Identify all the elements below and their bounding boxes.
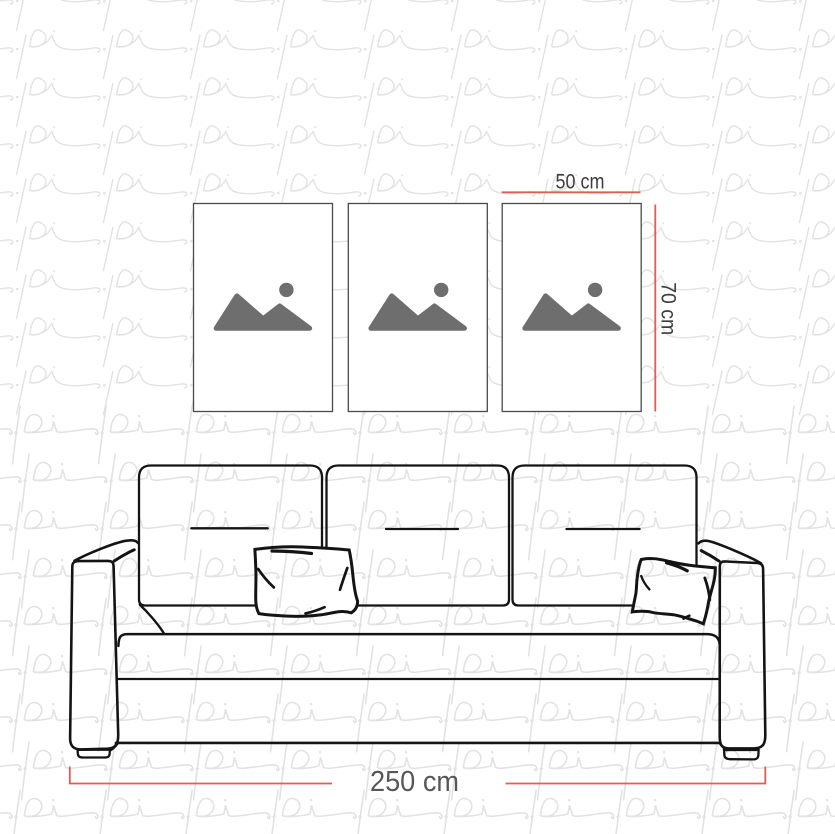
svg-text:250 cm: 250 cm [370,766,459,798]
svg-text:70 cm: 70 cm [657,282,681,335]
svg-text:50 cm: 50 cm [556,170,605,194]
